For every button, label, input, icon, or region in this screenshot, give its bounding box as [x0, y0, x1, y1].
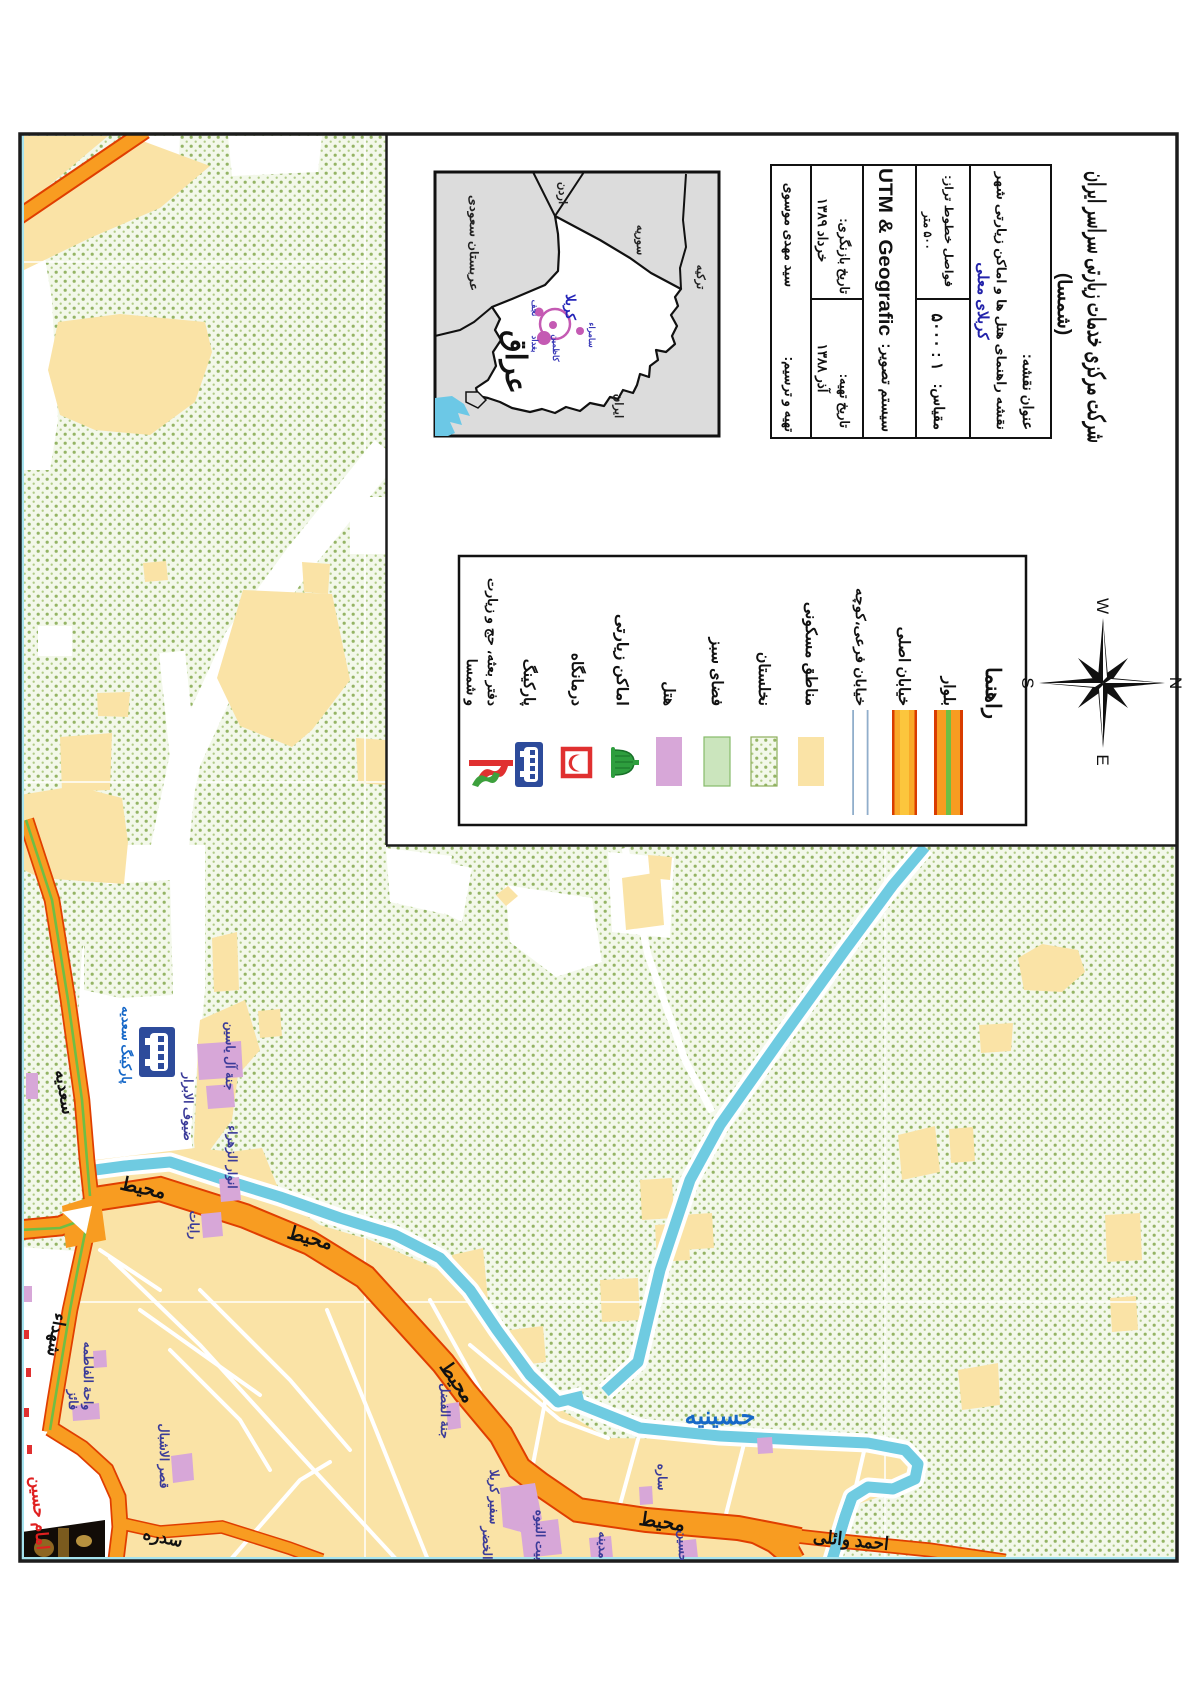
svg-text:کربلای معلی: کربلای معلی	[974, 262, 991, 340]
svg-text:سفیر کربلا: سفیر کربلا	[486, 1470, 501, 1525]
svg-text:خرداد ۱۳۸۹: خرداد ۱۳۸۹	[814, 198, 830, 262]
svg-text:نجف: نجف	[530, 300, 540, 317]
svg-text:سید مهدی موسوی: سید مهدی موسوی	[781, 183, 797, 287]
svg-text:فائز: فائز	[65, 1389, 80, 1410]
svg-text:مناطق مسکونی: مناطق مسکونی	[801, 602, 819, 706]
svg-text:جنة آل یاسین: جنة آل یاسین	[222, 1022, 239, 1091]
svg-text:سوریه: سوریه	[633, 225, 646, 256]
svg-text:پارکینگ سعدیه: پارکینگ سعدیه	[118, 1006, 135, 1084]
svg-text:سامراء: سامراء	[586, 322, 597, 347]
svg-text:واحة الفاطمه: واحة الفاطمه	[80, 1342, 95, 1411]
svg-text:ساره: ساره	[654, 1464, 669, 1491]
svg-text:مقیاس:: مقیاس:	[930, 384, 946, 431]
svg-text:W: W	[1093, 598, 1112, 614]
svg-text:حسینیه: حسینیه	[685, 1403, 756, 1430]
svg-text:تاریخ تهیه:: تاریخ تهیه:	[836, 374, 852, 429]
svg-text:N: N	[1166, 677, 1185, 689]
svg-text:(شمسا): (شمسا)	[1053, 273, 1074, 335]
svg-text:انوار الزهراء: انوار الزهراء	[224, 1125, 239, 1188]
svg-text:هتل: هتل	[660, 681, 677, 706]
svg-text:جنة الفضل: جنة الفضل	[438, 1383, 452, 1439]
svg-text:پارکینگ: پارکینگ	[519, 659, 539, 707]
svg-text:عنوان نقشه:: عنوان نقشه:	[1019, 354, 1035, 430]
svg-text:خیابان فرعی،کوچه: خیابان فرعی،کوچه	[852, 588, 868, 706]
svg-text:نقشه راهنمای هتل ها و اماکن زی: نقشه راهنمای هتل ها و اماکن زیارتی شهر	[993, 171, 1008, 430]
svg-text:نخلستان: نخلستان	[755, 652, 772, 706]
svg-text:اردن: اردن	[555, 182, 569, 204]
svg-text:سیستم تصویر:: سیستم تصویر:	[878, 344, 894, 432]
svg-text:آذر ۱۳۸۸: آذر ۱۳۸۸	[814, 343, 832, 393]
svg-text:اماکن زیارتی: اماکن زیارتی	[612, 614, 630, 706]
svg-text:تاریخ بازنگری:: تاریخ بازنگری:	[836, 218, 853, 294]
svg-text:خیابان اصلی: خیابان اصلی	[895, 627, 912, 707]
svg-text:مدینه: مدینه	[596, 1531, 610, 1559]
svg-text:دفتر بعثه، حج و زیارت: دفتر بعثه، حج و زیارت	[484, 578, 500, 706]
svg-text:کربلا: کربلا	[562, 294, 578, 320]
svg-text:درمانگاه: درمانگاه	[567, 653, 587, 706]
svg-text:الخضر: الخضر	[479, 1525, 494, 1559]
svg-text:ضیوف الابرار: ضیوف الابرار	[180, 1072, 195, 1141]
svg-text:تهیه و ترسیم:: تهیه و ترسیم:	[781, 357, 797, 433]
svg-text:بلوار: بلوار	[939, 676, 957, 706]
svg-text:کاظمین: کاظمین	[550, 334, 561, 362]
svg-text:E: E	[1093, 754, 1112, 765]
svg-text:S: S	[1018, 677, 1037, 688]
svg-text:عربستان سعودی: عربستان سعودی	[466, 195, 480, 291]
svg-text:UTM & Geografic: UTM & Geografic	[874, 168, 895, 336]
svg-text:فضای سبز: فضای سبز	[707, 637, 725, 706]
svg-text:راهنما: راهنما	[980, 667, 1004, 719]
svg-text:فواصل خطوط تراز:: فواصل خطوط تراز:	[942, 175, 954, 287]
svg-text:۵۰۰ متر: ۵۰۰ متر	[920, 211, 933, 250]
svg-text:ایران: ایران	[611, 394, 625, 418]
svg-text:بیت النبوه: بیت النبوه	[532, 1510, 547, 1561]
svg-text:قصر الاشبال: قصر الاشبال	[156, 1424, 171, 1489]
svg-text:عراق: عراق	[498, 330, 531, 394]
svg-text:و شمسا: و شمسا	[463, 659, 480, 706]
svg-text:شرکت مرکزی خدمات زیارتی سراسر: شرکت مرکزی خدمات زیارتی سراسر ایران	[1081, 171, 1109, 443]
svg-text:رایات: رایات	[186, 1211, 201, 1240]
svg-text:۵۰۰۰ : ۱: ۵۰۰۰ : ۱	[928, 313, 945, 370]
svg-text:ترکیه: ترکیه	[693, 265, 707, 290]
